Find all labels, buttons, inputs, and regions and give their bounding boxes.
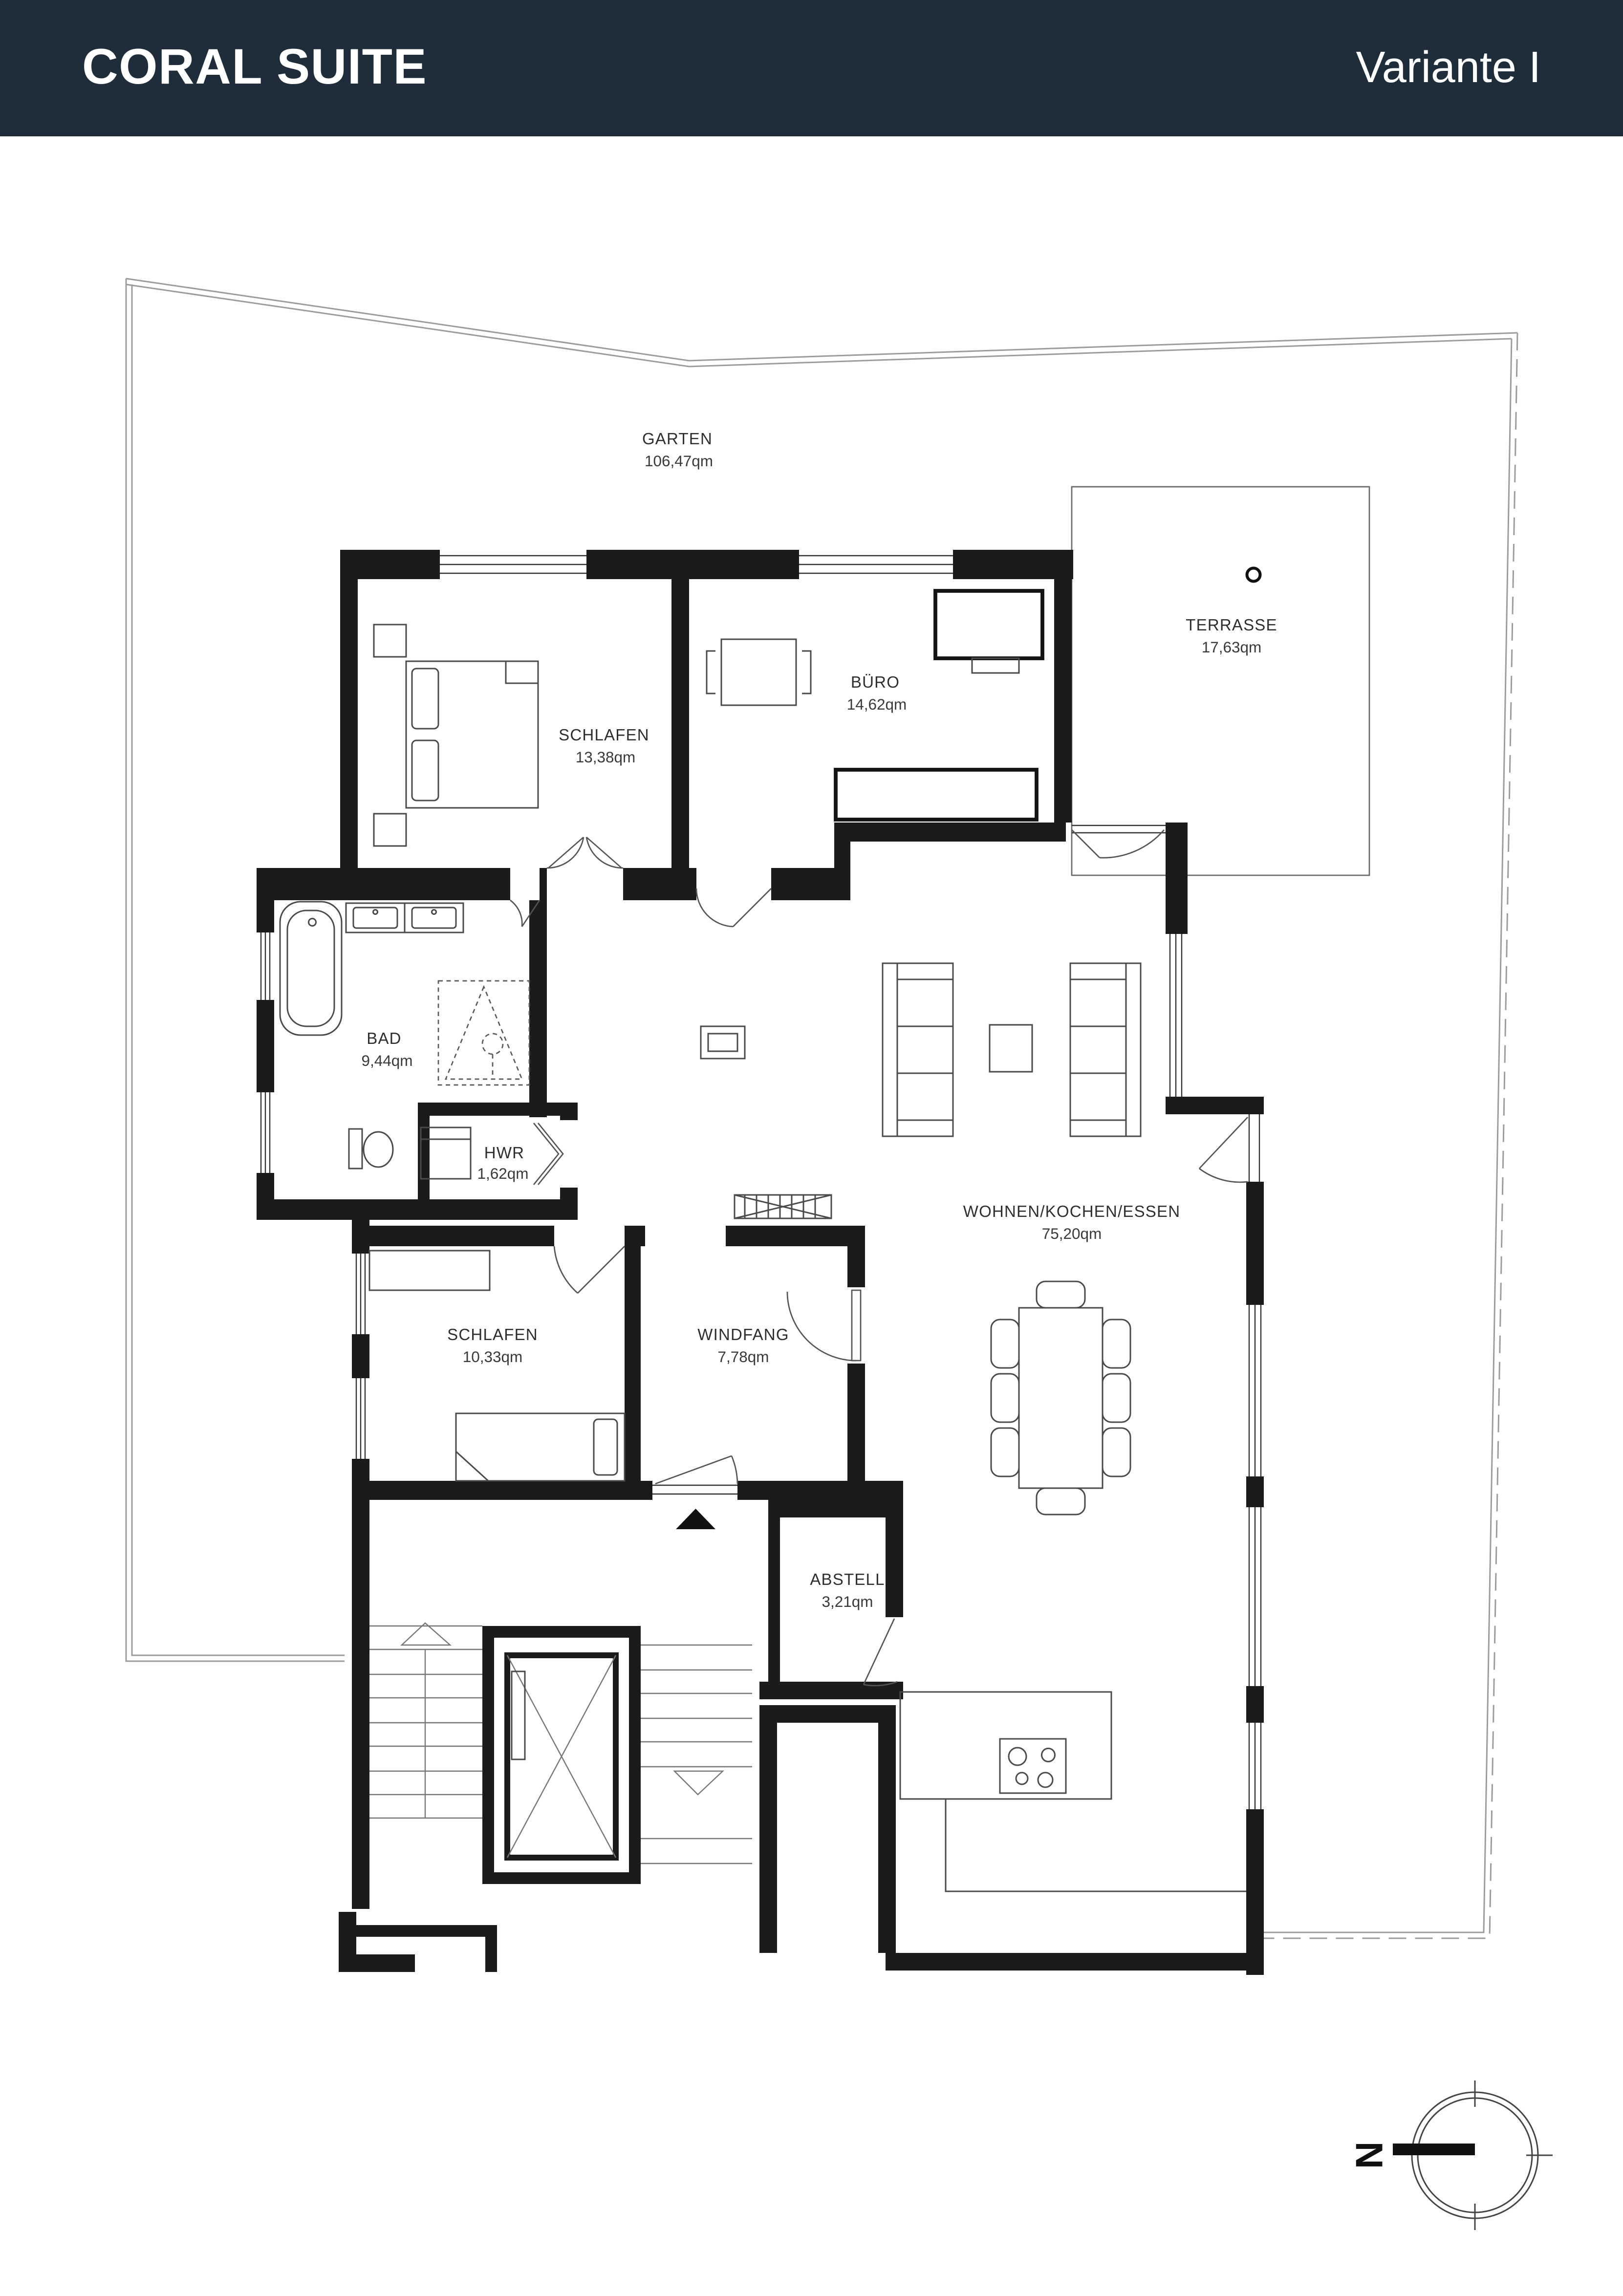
nightstand-bottom: [374, 814, 406, 846]
window-buero-top: [799, 550, 953, 579]
label-windfang: WINDFANG: [697, 1325, 789, 1343]
nightstand-top: [374, 625, 406, 657]
wardrobe: [369, 1251, 490, 1290]
area-abstell: 3,21qm: [822, 1593, 873, 1610]
label-terrasse: TERRASSE: [1186, 616, 1277, 634]
area-windfang: 7,78qm: [717, 1348, 769, 1365]
label-wohnen: WOHNEN/KOCHEN/ESSEN: [963, 1202, 1181, 1220]
window-living-east-1: [1249, 1305, 1261, 1476]
area-terrasse: 17,63qm: [1202, 638, 1262, 656]
floor-plan-drawing: GARTEN 106,47qm TERRASSE 17,63qm SCHLAFE…: [0, 0, 1623, 2296]
door-garden-east: [1199, 1117, 1248, 1182]
label-garten: GARTEN: [642, 430, 713, 448]
window-living-east-2: [1249, 1507, 1261, 1686]
desk: [707, 639, 811, 705]
entrance-marker-icon: [676, 1509, 715, 1529]
sofa-right: [1070, 963, 1141, 1136]
bathtub: [280, 902, 342, 1035]
stairwell: [369, 1623, 752, 1878]
label-schlafen-2: SCHLAFEN: [447, 1325, 538, 1343]
cooktop: [1000, 1739, 1066, 1793]
area-bad: 9,44qm: [361, 1052, 412, 1069]
kitchen-counter: [900, 1692, 1246, 1891]
doors: [510, 830, 1248, 1686]
vanity-double-sink: [346, 903, 463, 932]
label-schlafen-1: SCHLAFEN: [559, 726, 649, 744]
label-hwr: HWR: [484, 1144, 524, 1162]
label-buero: BÜRO: [851, 673, 900, 691]
window-schlafen2-1: [352, 1254, 369, 1334]
toilet: [349, 1129, 393, 1169]
hall-dresser: [701, 1026, 745, 1059]
double-bed: [406, 661, 538, 808]
area-hwr: 1,62qm: [477, 1165, 528, 1182]
shower: [438, 981, 529, 1085]
window-bad-2: [257, 1092, 274, 1173]
area-wohnen: 75,20qm: [1042, 1225, 1102, 1242]
window-bad-1: [257, 932, 274, 1000]
area-schlafen-2: 10,33qm: [463, 1348, 523, 1365]
single-bed: [456, 1413, 625, 1481]
sofa-left: [883, 963, 953, 1136]
terrace-marker-icon: [1247, 568, 1260, 582]
window-schlafen2-2: [352, 1378, 369, 1459]
cabinet: [935, 591, 1042, 673]
door-terrace: [1072, 830, 1164, 858]
dining-table-group: [991, 1281, 1130, 1515]
elevator: [488, 1632, 635, 1878]
compass-north-label: N: [1348, 2142, 1391, 2169]
label-bad: BAD: [367, 1029, 401, 1047]
wall-openings: [510, 868, 903, 1682]
hall-wardrobe: [735, 1195, 831, 1218]
garden-door-sill: [1249, 1114, 1259, 1182]
coffee-table: [990, 1025, 1032, 1072]
window-living-east-3: [1249, 1723, 1261, 1809]
variant-label: Variante I: [1356, 43, 1541, 93]
area-buero: 14,62qm: [847, 695, 907, 713]
door-schlafen1-double: [547, 837, 623, 868]
terrace: [1072, 487, 1369, 875]
windows: [257, 550, 1261, 1809]
floor-plan-page: GARTEN 106,47qm TERRASSE 17,63qm SCHLAFE…: [0, 0, 1623, 2296]
door-schlafen2: [554, 1246, 625, 1293]
terrace-door-sill: [1072, 825, 1166, 833]
door-hwr-folding: [534, 1123, 563, 1185]
page-title: CORAL SUITE: [82, 40, 427, 97]
north-arrow-icon: N: [1348, 2080, 1553, 2230]
stairs-right-flight: [641, 1645, 752, 1863]
label-abstell: ABSTELL: [810, 1570, 885, 1588]
header-bar: CORAL SUITE Variante I: [0, 0, 1623, 136]
stairs-down-arrow-icon: [674, 1771, 723, 1795]
stairs-left-flight: [369, 1623, 482, 1818]
area-schlafen-1: 13,38qm: [576, 748, 636, 766]
area-garten: 106,47qm: [645, 452, 713, 470]
window-living-northeast: [1170, 934, 1182, 1097]
window-schlafen1-top: [440, 550, 586, 579]
sideboard: [836, 770, 1037, 820]
walls: [257, 550, 1264, 1975]
